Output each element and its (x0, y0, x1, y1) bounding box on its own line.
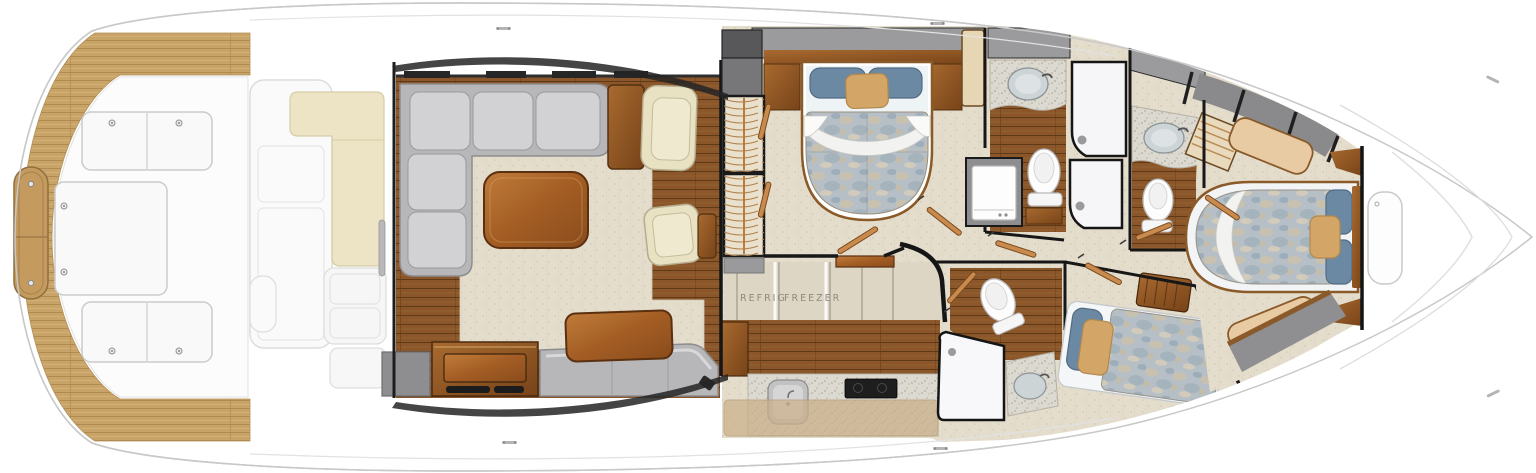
master-nightstand-left (764, 64, 800, 110)
head1-sink-bowl (1015, 74, 1041, 94)
head1-toilet (1028, 149, 1062, 206)
head2-sink-bowl (1151, 129, 1177, 147)
head-guest (935, 262, 1065, 420)
shower1-drain (1078, 136, 1087, 145)
salon-armchair-2 (643, 203, 703, 266)
mezzanine (250, 80, 386, 388)
engine-hatch-middle (55, 182, 167, 295)
master-cabinet-corner (722, 30, 762, 58)
master-locker-tall (962, 30, 984, 106)
head3-shower (938, 332, 1004, 420)
mezzanine-pod (250, 276, 276, 332)
galley-floor (722, 320, 940, 376)
galley-bar-overhang (724, 400, 938, 436)
salon-bench-table (565, 310, 673, 362)
transom-door (14, 167, 48, 299)
salon-aft-cabinet (432, 342, 538, 396)
refrig-label: REFRIG (740, 293, 787, 304)
galley-cabinet (722, 322, 748, 376)
head3-drain (948, 348, 956, 356)
master-cabinet-corner2 (722, 58, 762, 96)
freezer-label: FREEZER (784, 293, 841, 304)
shower2-drain (1076, 202, 1085, 211)
washer-niche (966, 158, 1022, 226)
pillow-accent-tan (845, 73, 888, 108)
salon-door-handle (379, 220, 385, 276)
galley-cooktop (845, 379, 897, 398)
companionway-step (836, 256, 894, 267)
vip-pillow-tan (1310, 216, 1340, 258)
salon-armchair-1 (641, 85, 698, 171)
salon (379, 62, 720, 398)
head1-shelf (1026, 208, 1062, 224)
salon-side-table-2 (698, 214, 716, 258)
yacht-floorplan: REFRIG FREEZER (0, 0, 1536, 473)
salon-entry-step (382, 352, 430, 396)
head3-sink (1014, 373, 1046, 399)
salon-coffee-table (484, 172, 588, 248)
master-bed (802, 62, 932, 220)
guest-nightstand (1136, 273, 1192, 313)
mezzanine-seat (324, 268, 386, 344)
engine-hatch-top (82, 112, 212, 170)
salon-side-table (608, 85, 644, 169)
cockpit (14, 33, 250, 441)
showers (1070, 62, 1126, 228)
shower-stall-2 (1070, 160, 1122, 228)
hanging-locker-upper (724, 96, 764, 172)
floorplan-svg: REFRIG FREEZER (0, 0, 1536, 473)
mezzanine-seat-aft (330, 348, 386, 388)
bow-hatch (1368, 192, 1402, 284)
washer (972, 166, 1016, 220)
locker-step (724, 258, 764, 273)
engine-hatch-bottom (82, 302, 212, 362)
